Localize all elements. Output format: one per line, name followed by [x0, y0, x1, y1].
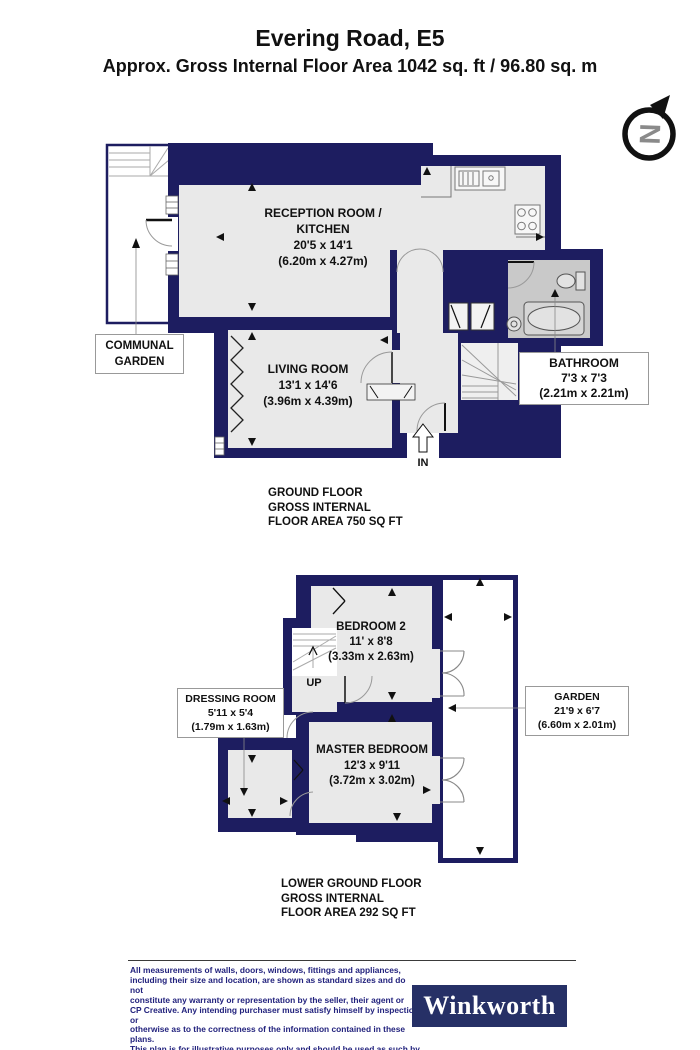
compass-north-letter: N — [632, 117, 665, 150]
reception-room-label: RECEPTION ROOM / KITCHEN 20'5 x 14'1 (6.… — [223, 205, 423, 269]
hall-stairs-icon — [461, 343, 518, 400]
communal-garden-label: COMMUNAL GARDEN — [95, 334, 184, 374]
toilet-icon — [557, 272, 585, 290]
dressing-room-label: DRESSING ROOM 5'11 x 5'4 (1.79m x 1.63m) — [177, 688, 284, 738]
ground-floor-plan — [107, 143, 603, 458]
winkworth-logo: Winkworth — [412, 985, 567, 1027]
bathtub-icon — [524, 302, 584, 335]
up-label: UP — [299, 676, 329, 691]
communal-garden-area — [107, 145, 170, 323]
master-bedroom-label: MASTER BEDROOM 12'3 x 9'11 (3.72m x 3.02… — [294, 743, 450, 790]
floorplan-page: Evering Road, E5 Approx. Gross Internal … — [0, 0, 700, 1050]
living-room-label: LIVING ROOM 13'1 x 14'6 (3.96m x 4.39m) — [223, 361, 393, 409]
entrance-in-label: IN — [409, 456, 437, 471]
garden-label: GARDEN 21'9 x 6'7 (6.60m x 2.01m) — [525, 686, 629, 736]
basin-icon — [507, 317, 521, 331]
bedroom2-label: BEDROOM 2 11' x 8'8 (3.33m x 2.63m) — [296, 620, 446, 665]
ground-floor-caption: GROUND FLOOR GROSS INTERNAL FLOOR AREA 7… — [268, 486, 488, 530]
footer-divider — [128, 960, 576, 961]
bathroom-label: BATHROOM 7'3 x 7'3 (2.21m x 2.21m) — [519, 352, 649, 405]
hob-icon — [515, 205, 540, 234]
kitchen-sink-icon — [455, 167, 505, 190]
lower-floor-caption: LOWER GROUND FLOOR GROSS INTERNAL FLOOR … — [281, 877, 501, 921]
disclaimer-text: All measurements of walls, doors, window… — [130, 966, 420, 1050]
